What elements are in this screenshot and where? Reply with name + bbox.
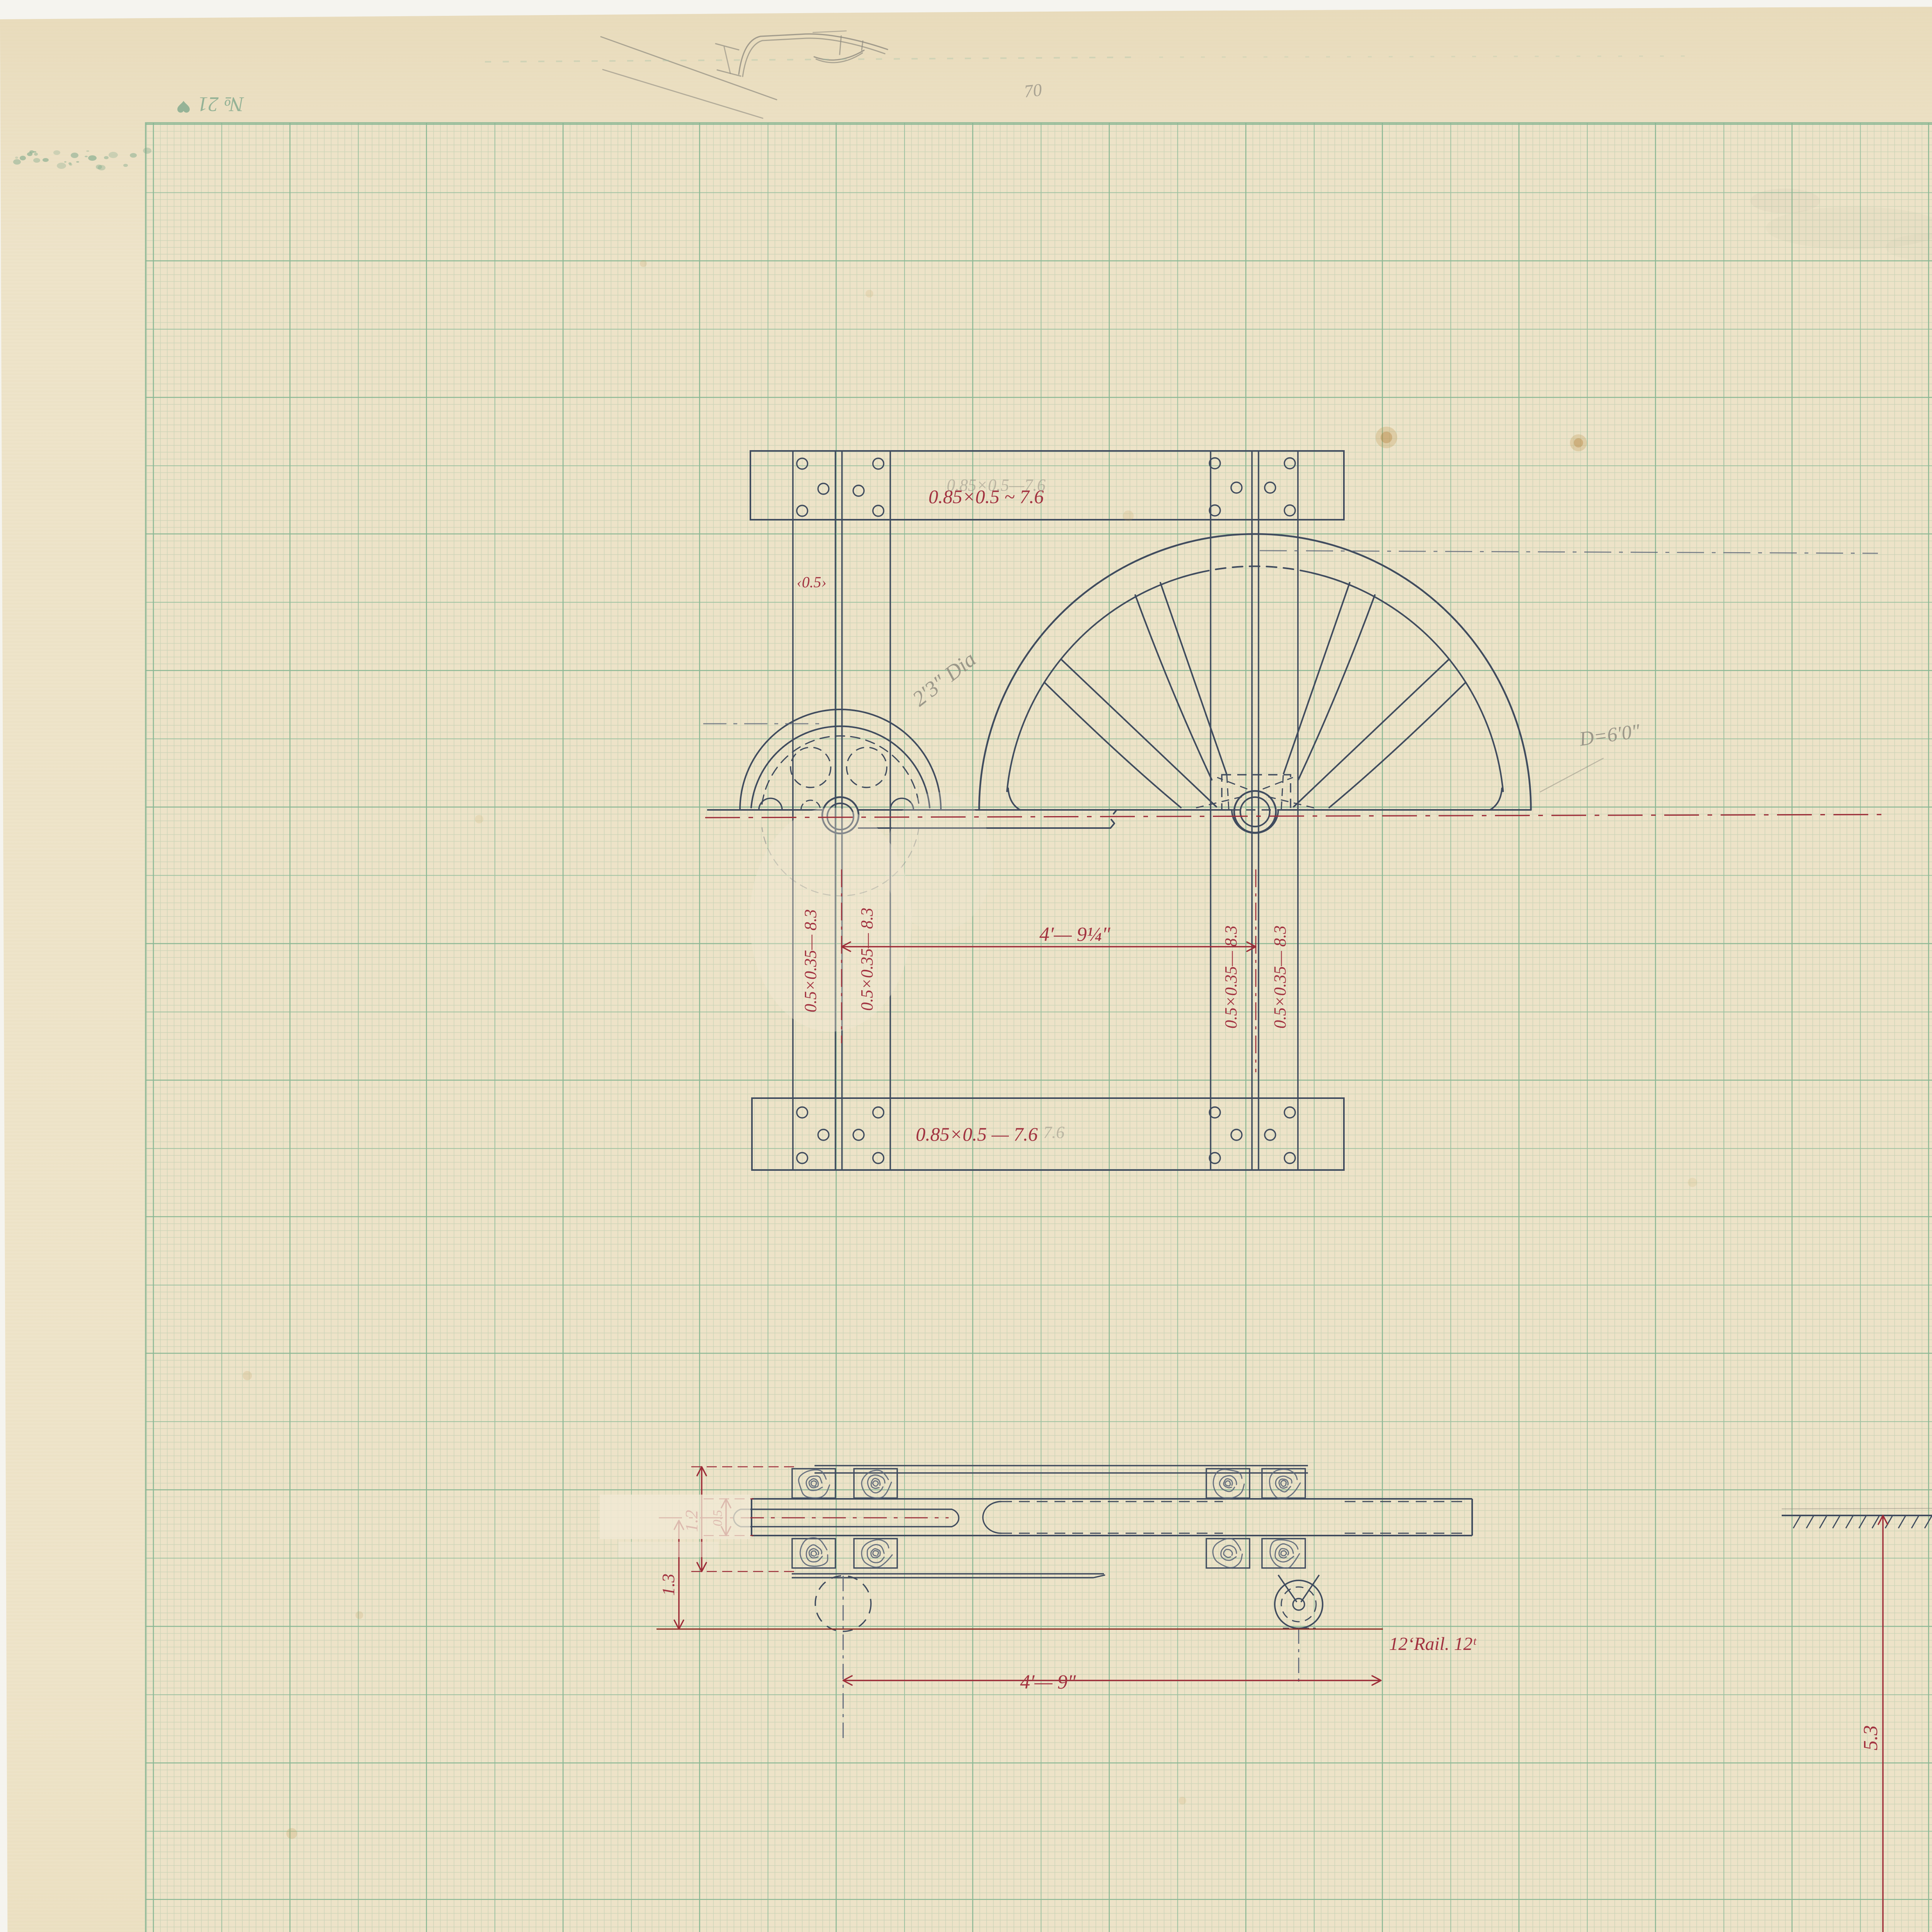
svg-text:0.5×0.35— 8.3: 0.5×0.35— 8.3: [857, 908, 876, 1011]
svg-text:12ʻRail. 12ᵗ: 12ʻRail. 12ᵗ: [1389, 1634, 1477, 1654]
svg-text:7.6: 7.6: [1043, 1123, 1065, 1142]
svg-text:0.85×0.5 — 7.6: 0.85×0.5 — 7.6: [916, 1123, 1038, 1145]
svg-text:№ 21: № 21: [198, 93, 244, 116]
svg-text:0.85×0.5—7.6: 0.85×0.5—7.6: [947, 476, 1046, 495]
svg-text:4′— 9″: 4′— 9″: [1020, 1671, 1077, 1693]
svg-text:0.5×0.35— 8.3: 0.5×0.35— 8.3: [1221, 925, 1240, 1029]
svg-text:4′— 9¼″: 4′— 9¼″: [1039, 923, 1111, 946]
svg-text:0.5×0.35— 8.3: 0.5×0.35— 8.3: [1270, 925, 1289, 1029]
svg-text:1.3: 1.3: [658, 1574, 678, 1596]
svg-text:70: 70: [1023, 80, 1043, 101]
svg-text:5.3: 5.3: [1860, 1725, 1882, 1750]
svg-text:0.5×0.35— 8.3: 0.5×0.35— 8.3: [801, 909, 820, 1012]
svg-text:‹0.5›: ‹0.5›: [797, 573, 827, 591]
